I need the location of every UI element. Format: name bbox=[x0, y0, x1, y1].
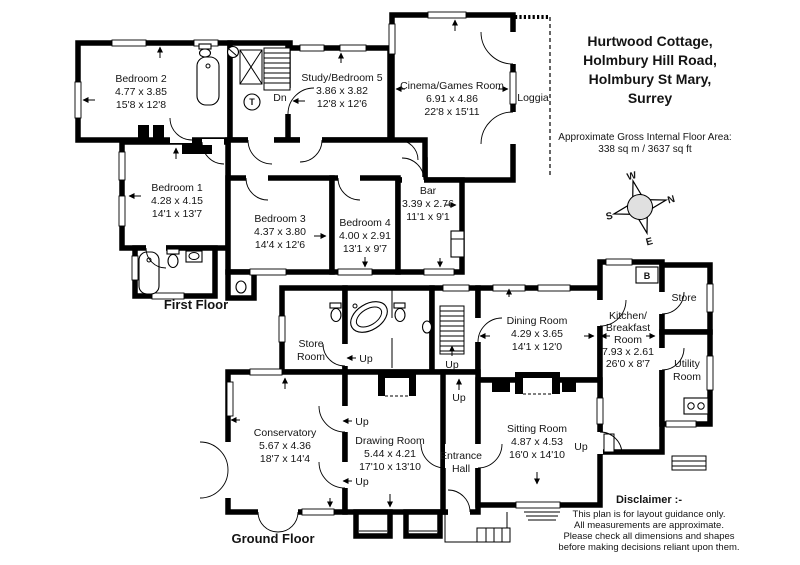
bedroom3-name: Bedroom 3 bbox=[254, 213, 306, 225]
store-name: Store bbox=[671, 292, 696, 304]
address-line-2: Holmbury Hill Road, bbox=[583, 52, 717, 68]
area-label: Approximate Gross Internal Floor Area: bbox=[558, 132, 731, 143]
utility-line2: Room bbox=[673, 371, 701, 383]
kitchen-line2: Breakfast bbox=[606, 322, 650, 334]
bedroom4-imperial: 13'1 x 9'7 bbox=[343, 243, 387, 255]
kitchen-line1: Kitchen/ bbox=[609, 310, 647, 322]
compass-north: N bbox=[666, 194, 676, 206]
study-name: Study/Bedroom 5 bbox=[301, 72, 382, 84]
bedroom4-name: Bedroom 4 bbox=[339, 217, 391, 229]
drawing-metric: 5.44 x 4.21 bbox=[364, 448, 416, 460]
sitting-name: Sitting Room bbox=[507, 423, 567, 435]
cinema-name: Cinema/Games Room bbox=[400, 80, 504, 92]
conservatory-name: Conservatory bbox=[254, 427, 317, 439]
cinema-imperial: 22'8 x 15'11 bbox=[424, 106, 479, 118]
dining-name: Dining Room bbox=[507, 315, 568, 327]
bedroom1-metric: 4.28 x 4.15 bbox=[151, 195, 203, 207]
conservatory-metric: 5.67 x 4.36 bbox=[259, 440, 311, 452]
bedroom3-imperial: 14'4 x 12'6 bbox=[255, 239, 305, 251]
landing-corridor-walls bbox=[228, 140, 425, 180]
bedroom3-walls bbox=[228, 178, 332, 272]
store-room-line2: Room bbox=[297, 351, 325, 363]
bedroom2-name: Bedroom 2 bbox=[115, 73, 167, 85]
dining-imperial: 14'1 x 12'0 bbox=[512, 341, 562, 353]
bedroom2-metric: 4.77 x 3.85 bbox=[115, 86, 167, 98]
boiler-label: B bbox=[644, 271, 651, 281]
bedroom2-imperial: 15'8 x 12'8 bbox=[116, 99, 166, 111]
kitchen-metric: 7.93 x 2.61 bbox=[602, 346, 654, 358]
area-value: 338 sq m / 3637 sq ft bbox=[598, 144, 692, 155]
floorplan-canvas: W N E S Hurtwood Cottage, Holmbury Hill … bbox=[0, 0, 800, 565]
first-floor-title: First Floor bbox=[164, 297, 228, 312]
drawing-name: Drawing Room bbox=[355, 435, 425, 447]
bedroom1-name: Bedroom 1 bbox=[151, 182, 203, 194]
ground-floor-title: Ground Floor bbox=[231, 531, 314, 546]
address-line-1: Hurtwood Cottage, bbox=[587, 33, 712, 49]
up-label-conservatory-2: Up bbox=[355, 476, 369, 488]
up-label-stairs: Up bbox=[445, 359, 459, 371]
drawing-bay-1 bbox=[356, 512, 390, 536]
disclaimer-line-4: before making decisions reliant upon the… bbox=[558, 542, 739, 553]
study-imperial: 12'8 x 12'6 bbox=[317, 98, 367, 110]
cinema-metric: 6.91 x 4.86 bbox=[426, 93, 478, 105]
stairs-down-label: Dn bbox=[273, 92, 287, 104]
entrance-line2: Hall bbox=[452, 463, 470, 475]
up-label-store: Up bbox=[359, 353, 373, 365]
bedroom4-metric: 4.00 x 2.91 bbox=[339, 230, 391, 242]
up-label-hall: Up bbox=[452, 392, 466, 404]
disclaimer-line-3: Please check all dimensions and shapes bbox=[563, 531, 734, 542]
compass-east: E bbox=[645, 236, 655, 248]
utility-line1: Utility bbox=[674, 358, 700, 370]
study-metric: 3.86 x 3.82 bbox=[316, 85, 368, 97]
compass-west: W bbox=[626, 170, 639, 183]
kitchen-line3: Room bbox=[614, 334, 642, 346]
address-line-3: Holmbury St Mary, bbox=[589, 71, 712, 87]
up-label-conservatory-1: Up bbox=[355, 416, 369, 428]
kitchen-imperial: 26'0 x 8'7 bbox=[606, 358, 650, 370]
store-room-line1: Store bbox=[298, 338, 323, 350]
bar-name: Bar bbox=[420, 185, 437, 197]
floorplan-page: W N E S Hurtwood Cottage, Holmbury Hill … bbox=[0, 0, 800, 565]
bar-metric: 3.39 x 2.76 bbox=[402, 198, 454, 210]
bar-imperial: 11'1 x 9'1 bbox=[406, 211, 450, 223]
disclaimer-line-1: This plan is for layout guidance only. bbox=[573, 509, 726, 520]
drawing-bay-2 bbox=[406, 512, 440, 536]
disclaimer-title: Disclaimer :- bbox=[616, 494, 682, 506]
entrance-line1: Entrance bbox=[440, 450, 482, 462]
compass-rose: W N E S bbox=[596, 162, 685, 257]
sitting-metric: 4.87 x 4.53 bbox=[511, 436, 563, 448]
up-label-sitting: Up bbox=[574, 441, 588, 453]
sitting-imperial: 16'0 x 14'10 bbox=[509, 449, 565, 461]
drawing-imperial: 17'10 x 13'10 bbox=[359, 461, 421, 473]
tank-label: T bbox=[249, 97, 255, 107]
loggia-name: Loggia bbox=[517, 92, 549, 104]
compass-circle bbox=[625, 192, 656, 223]
dining-metric: 4.29 x 3.65 bbox=[511, 328, 563, 340]
disclaimer-line-2: All measurements are approximate. bbox=[574, 520, 724, 531]
address-line-4: Surrey bbox=[628, 90, 673, 106]
bedroom1-imperial: 14'1 x 13'7 bbox=[152, 208, 202, 220]
conservatory-imperial: 18'7 x 14'4 bbox=[260, 453, 310, 465]
compass-south: S bbox=[605, 210, 615, 222]
bedroom3-metric: 4.37 x 3.80 bbox=[254, 226, 306, 238]
